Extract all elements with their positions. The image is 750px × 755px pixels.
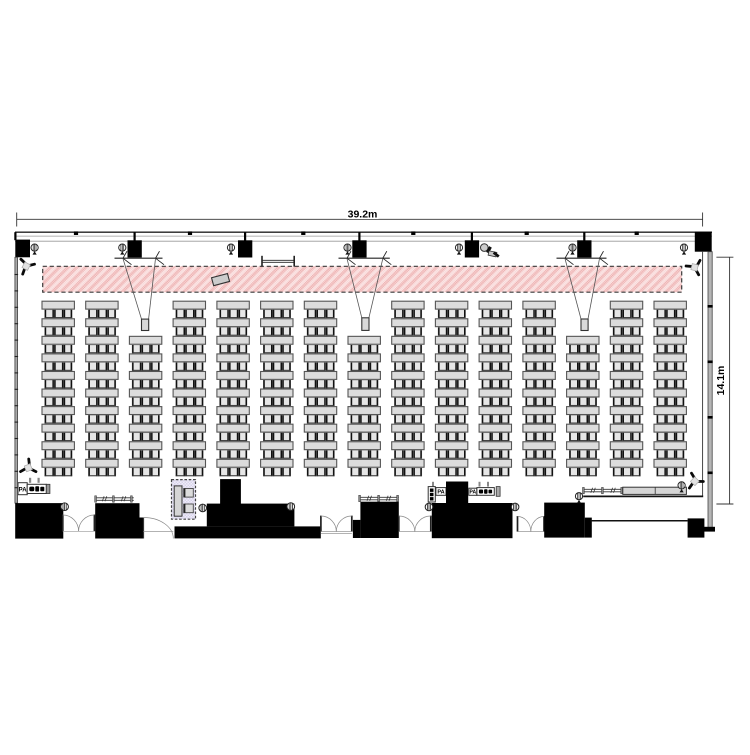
svg-text:39.2m: 39.2m (348, 209, 378, 221)
svg-text:PA: PA (437, 490, 444, 496)
svg-text:PA: PA (470, 490, 477, 496)
svg-text:PA: PA (19, 488, 28, 494)
svg-text:14.1m: 14.1m (715, 366, 727, 396)
